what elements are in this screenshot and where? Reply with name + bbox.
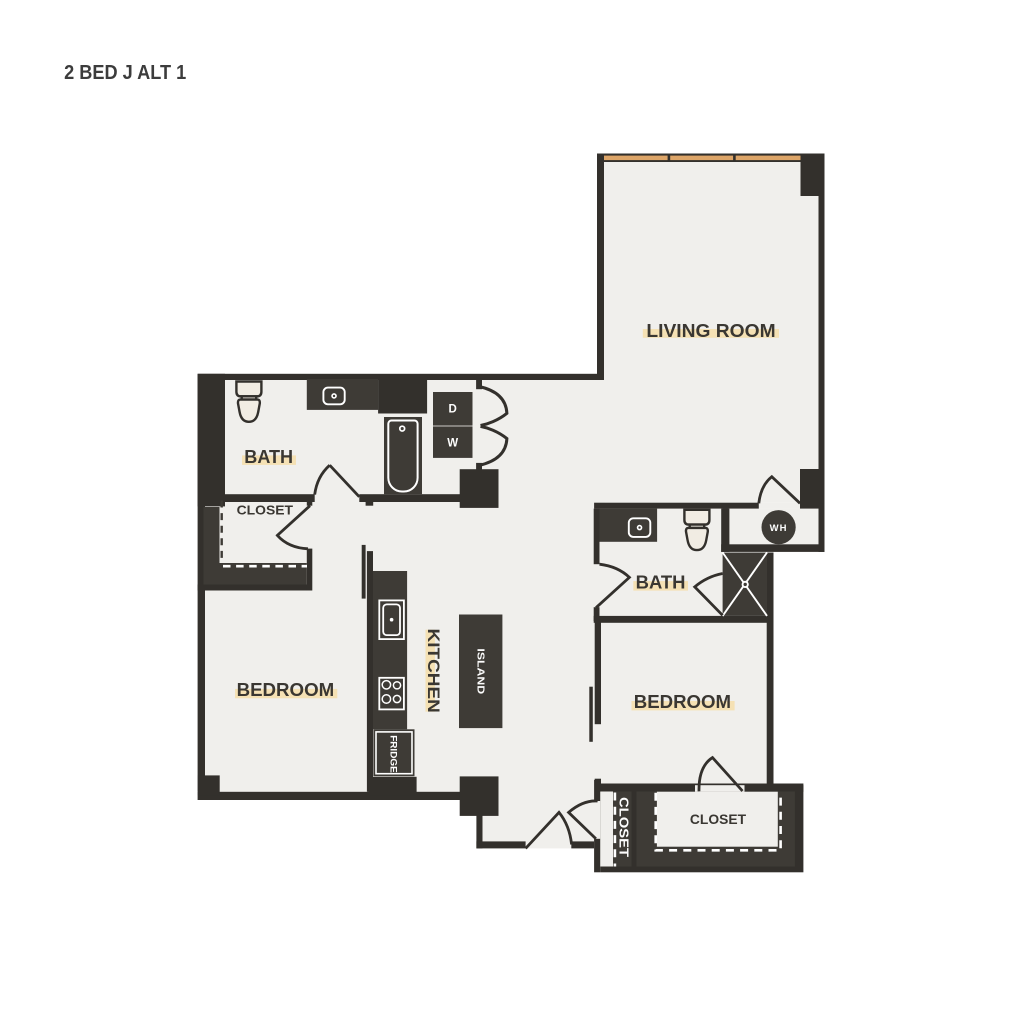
svg-text:CLOSET: CLOSET (617, 797, 631, 857)
svg-text:ISLAND: ISLAND (475, 648, 486, 694)
svg-text:BEDROOM: BEDROOM (237, 679, 335, 700)
svg-text:CLOSET: CLOSET (237, 502, 293, 517)
svg-text:WH: WH (770, 523, 788, 534)
svg-text:CLOSET: CLOSET (690, 812, 747, 827)
svg-text:FRIDGE: FRIDGE (388, 735, 399, 773)
svg-text:BEDROOM: BEDROOM (634, 691, 731, 712)
svg-text:BATH: BATH (636, 572, 686, 593)
svg-text:LIVING ROOM: LIVING ROOM (646, 320, 775, 341)
svg-text:KITCHEN: KITCHEN (424, 629, 443, 713)
svg-text:D: D (449, 404, 457, 416)
svg-text:BATH: BATH (244, 446, 293, 467)
svg-text:2 BED J ALT 1: 2 BED J ALT 1 (64, 62, 186, 84)
svg-text:W: W (447, 437, 458, 449)
